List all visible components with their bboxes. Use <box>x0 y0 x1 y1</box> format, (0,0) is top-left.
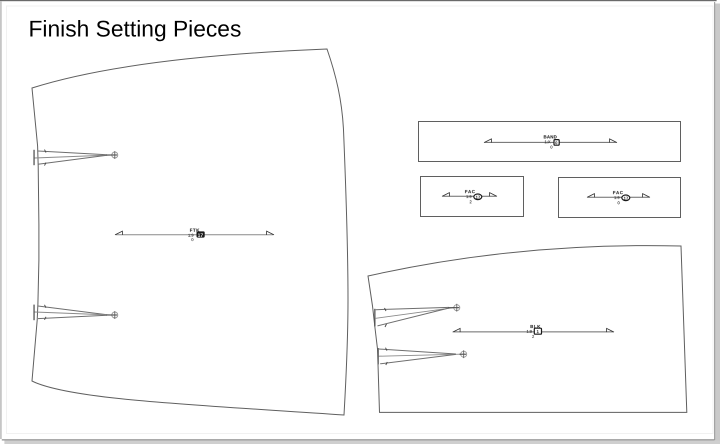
svg-text:Finish Setting Pieces: Finish Setting Pieces <box>29 16 242 42</box>
